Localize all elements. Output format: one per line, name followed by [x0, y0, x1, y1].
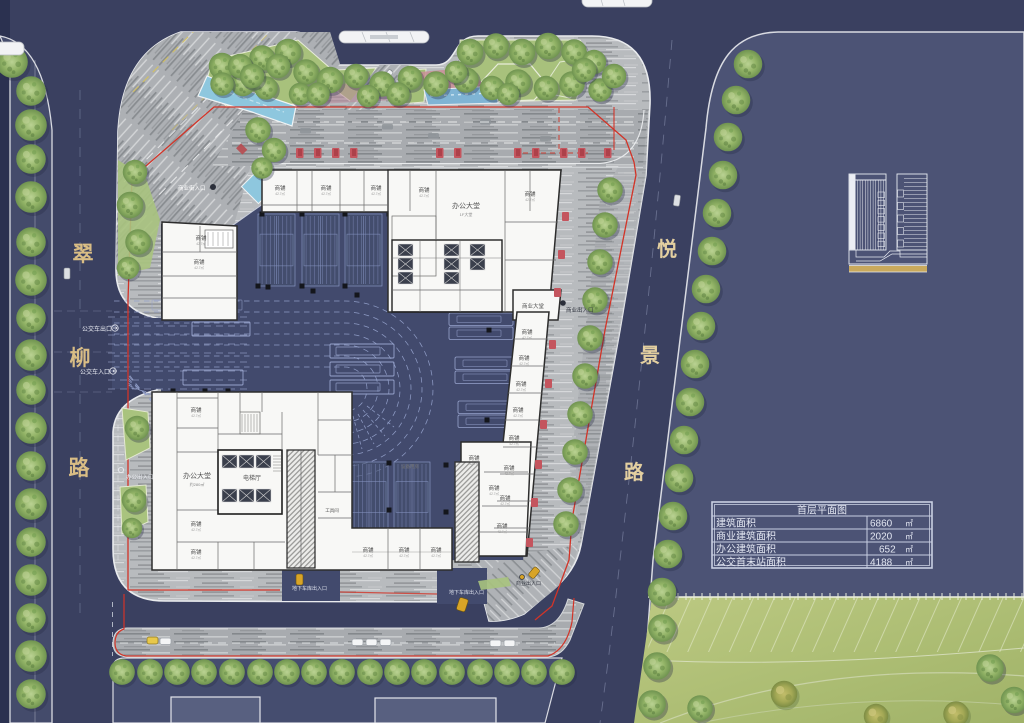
svg-text:商铺: 商铺	[524, 190, 536, 198]
svg-text:42.7㎡: 42.7㎡	[419, 193, 429, 198]
svg-text:42.7㎡: 42.7㎡	[321, 191, 331, 196]
svg-text:42.7㎡: 42.7㎡	[469, 461, 479, 466]
svg-text:地下车库出入口: 地下车库出入口	[292, 585, 327, 592]
svg-text:42.7㎡: 42.7㎡	[489, 491, 499, 496]
svg-text:商铺: 商铺	[320, 184, 332, 192]
svg-text:商铺: 商铺	[370, 184, 382, 192]
svg-text:电梯厅: 电梯厅	[243, 474, 261, 482]
svg-text:路: 路	[69, 456, 91, 480]
svg-text:商铺: 商铺	[515, 380, 527, 388]
svg-text:42.7㎡: 42.7㎡	[513, 413, 523, 418]
svg-text:商铺: 商铺	[418, 186, 430, 194]
svg-text:652: 652	[879, 545, 896, 556]
svg-text:建筑面积: 建筑面积	[716, 517, 756, 530]
svg-text:㎡: ㎡	[905, 558, 913, 567]
svg-text:商铺: 商铺	[499, 494, 511, 502]
svg-text:商铺: 商铺	[488, 484, 500, 492]
svg-text:42.7㎡: 42.7㎡	[191, 413, 201, 418]
svg-text:42.7㎡: 42.7㎡	[194, 265, 204, 270]
svg-text:商铺: 商铺	[195, 234, 207, 242]
svg-text:商铺: 商铺	[193, 258, 205, 266]
svg-text:设备用房: 设备用房	[401, 463, 419, 470]
svg-text:商铺: 商铺	[508, 434, 520, 442]
svg-text:工具间: 工具间	[325, 507, 339, 514]
svg-text:42.7㎡: 42.7㎡	[500, 501, 510, 506]
svg-text:42.7㎡: 42.7㎡	[191, 555, 201, 560]
svg-text:公交车出口: 公交车出口	[82, 325, 112, 333]
svg-text:办公大堂: 办公大堂	[452, 201, 480, 210]
svg-text:42.7㎡: 42.7㎡	[371, 191, 381, 196]
svg-text:商铺: 商铺	[468, 454, 480, 462]
svg-text:商铺: 商铺	[430, 546, 442, 554]
svg-text:办公建筑面积: 办公建筑面积	[716, 543, 776, 556]
svg-text:42.7㎡: 42.7㎡	[196, 241, 206, 246]
svg-text:办公大堂: 办公大堂	[183, 471, 211, 480]
svg-text:42.7㎡: 42.7㎡	[275, 191, 285, 196]
svg-text:㎡: ㎡	[905, 532, 913, 541]
svg-text:商业出入口: 商业出入口	[516, 580, 541, 587]
svg-text:商业建筑面积: 商业建筑面积	[716, 530, 776, 543]
svg-text:商铺: 商铺	[521, 328, 533, 336]
svg-text:路: 路	[624, 460, 645, 484]
svg-text:42.7㎡: 42.7㎡	[399, 553, 409, 558]
svg-text:办公出入口: 办公出入口	[126, 473, 154, 481]
svg-text:42.7㎡: 42.7㎡	[431, 553, 441, 558]
svg-text:42.7㎡: 42.7㎡	[509, 441, 519, 446]
svg-text:商铺: 商铺	[398, 546, 410, 554]
svg-text:㎡: ㎡	[905, 545, 913, 554]
svg-text:1F大堂: 1F大堂	[460, 211, 473, 217]
svg-text:商铺: 商铺	[190, 406, 202, 414]
svg-text:公交车入口: 公交车入口	[80, 368, 110, 376]
svg-text:6860: 6860	[870, 519, 893, 530]
svg-text:2020: 2020	[870, 532, 893, 543]
svg-text:首层平面图: 首层平面图	[797, 504, 847, 517]
svg-text:42.7㎡: 42.7㎡	[504, 471, 514, 476]
svg-text:商铺: 商铺	[274, 184, 286, 192]
svg-text:42.7㎡: 42.7㎡	[525, 197, 535, 202]
svg-text:商铺: 商铺	[518, 354, 530, 362]
svg-text:4188: 4188	[870, 558, 893, 569]
svg-text:42.7㎡: 42.7㎡	[191, 527, 201, 532]
svg-text:㎡: ㎡	[905, 519, 913, 528]
svg-text:悦: 悦	[657, 237, 677, 261]
svg-text:商铺: 商铺	[496, 522, 508, 530]
svg-text:公交首末站面积: 公交首末站面积	[716, 556, 786, 569]
svg-text:42.7㎡: 42.7㎡	[519, 361, 529, 366]
svg-text:42.7㎡: 42.7㎡	[363, 553, 373, 558]
svg-text:商业大堂: 商业大堂	[522, 302, 545, 310]
svg-text:商业出入口: 商业出入口	[566, 306, 594, 314]
svg-text:约280㎡: 约280㎡	[190, 481, 205, 487]
svg-text:商业街入口: 商业街入口	[178, 184, 206, 192]
svg-text:商铺: 商铺	[362, 546, 374, 554]
svg-text:景: 景	[640, 344, 660, 367]
svg-text:翠: 翠	[73, 243, 94, 266]
svg-text:柳: 柳	[70, 347, 91, 370]
svg-text:地下车库出入口: 地下车库出入口	[449, 589, 484, 596]
svg-text:42.7㎡: 42.7㎡	[522, 335, 532, 340]
svg-text:商铺: 商铺	[190, 520, 202, 528]
svg-text:42.7㎡: 42.7㎡	[516, 387, 526, 392]
svg-text:商铺: 商铺	[512, 406, 524, 414]
svg-text:商铺: 商铺	[190, 548, 202, 556]
svg-text:商铺: 商铺	[503, 464, 515, 472]
svg-text:42.7㎡: 42.7㎡	[497, 529, 507, 534]
